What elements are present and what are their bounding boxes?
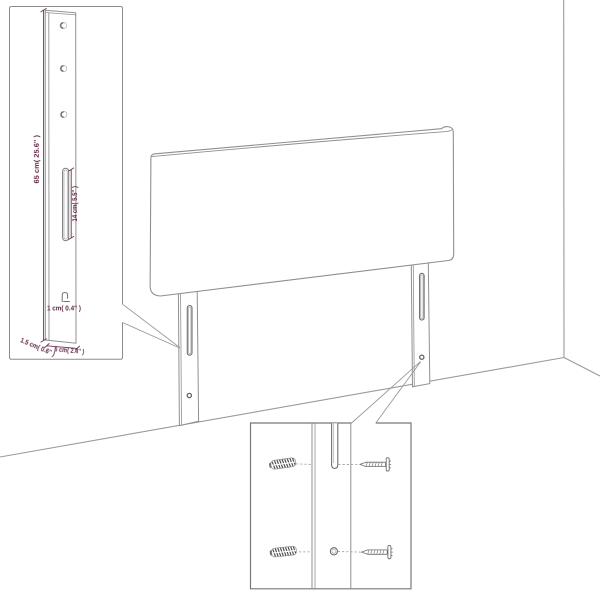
- svg-text:14 cm( 5.5'' ): 14 cm( 5.5'' ): [71, 186, 79, 222]
- svg-text:65 cm( 25.6'' ): 65 cm( 25.6'' ): [33, 135, 41, 184]
- svg-text:1 cm( 0.4'' ): 1 cm( 0.4'' ): [47, 304, 81, 312]
